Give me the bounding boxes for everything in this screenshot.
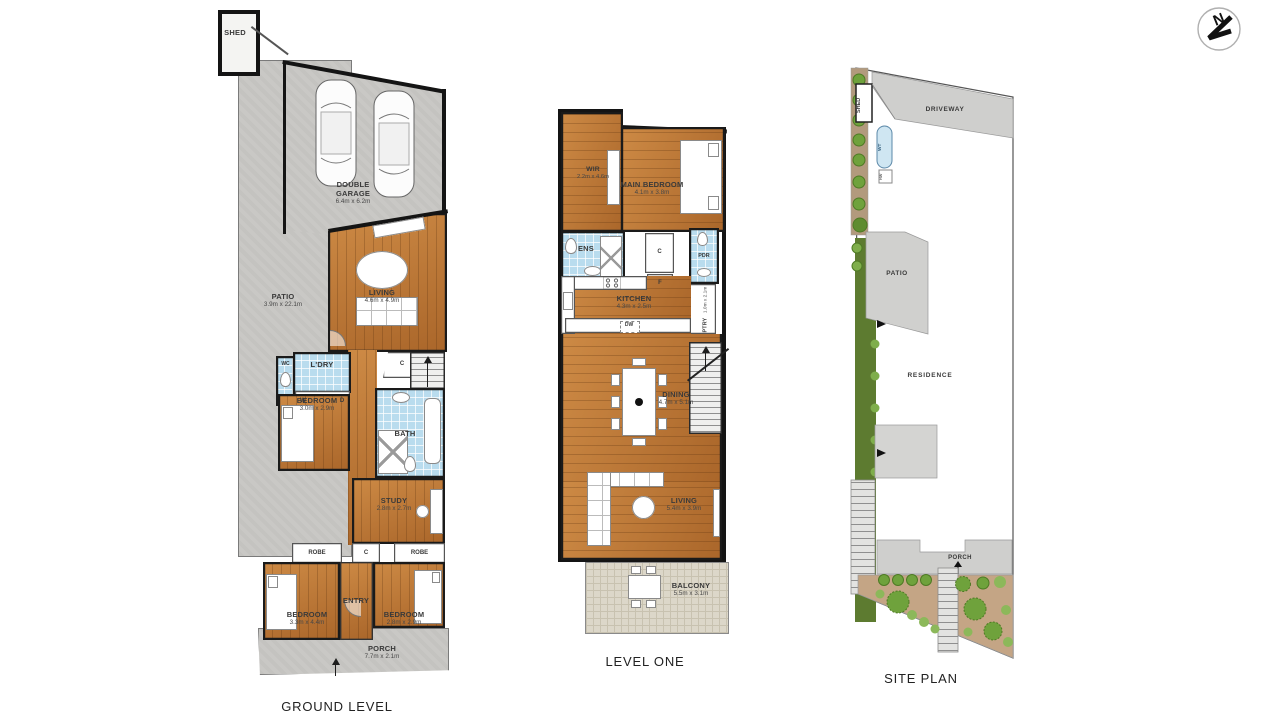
study-label: STUDY 2.8m x 2.7m <box>364 496 424 513</box>
room-dims: 2.8m x 2.7m <box>364 505 424 513</box>
sofa <box>587 472 611 546</box>
room-dims: 4.1m x 3.8m <box>620 189 684 197</box>
fridge-label: F <box>647 280 673 286</box>
chair <box>658 418 667 430</box>
room-dims: 2.8m x 2.9m <box>376 619 432 627</box>
chair <box>611 374 620 386</box>
hall-cupboard-label: C <box>388 361 416 367</box>
site-driveway-label: DRIVEWAY <box>913 107 977 114</box>
pantry-label: PTRY 1.0m x 2.1m <box>692 284 711 336</box>
chair <box>631 600 641 608</box>
cooktop <box>603 277 621 289</box>
site-shed-label: SHED <box>857 88 871 122</box>
room-dims: 1.0m x 2.1m <box>703 287 708 313</box>
chair <box>631 566 641 574</box>
l1-cupboard-label: C <box>645 249 674 255</box>
kitchen-sink <box>563 292 573 310</box>
site-patio-label: PATIO <box>869 271 925 278</box>
room-name: BATH <box>385 429 425 438</box>
level-one-title: LEVEL ONE <box>595 654 695 669</box>
site-garden <box>858 575 1013 658</box>
l1-living-label: LIVING 5.4m x 3.9m <box>653 496 715 513</box>
room-name: DOUBLE GARAGE <box>322 180 384 198</box>
room-name: ENTRY <box>334 596 378 605</box>
chair <box>632 438 646 446</box>
chair <box>646 600 656 608</box>
powder-label: PDR <box>689 254 719 259</box>
basin <box>584 266 601 276</box>
robe-left-label: ROBE <box>292 550 342 556</box>
room-dims: 4.6m x 4.9m <box>350 297 414 305</box>
room-name: ENS <box>570 244 602 253</box>
entry-label: ENTRY <box>334 596 378 605</box>
garage-wall-left <box>283 62 286 234</box>
pillow <box>708 196 719 210</box>
garage-label: DOUBLE GARAGE 6.4m x 6.2m <box>322 180 384 206</box>
ensuite-label: ENS <box>570 244 602 253</box>
bath-label: BATH <box>385 429 425 438</box>
entry-cupboard-label: C <box>352 550 380 556</box>
room-dims: 4.7m x 5.1m <box>644 399 708 407</box>
site-centre-steps <box>938 568 958 652</box>
room-dims: 3.9m x 22.1m <box>252 301 314 309</box>
dishwasher-label: DW <box>620 323 638 328</box>
shed-room <box>218 10 260 76</box>
porch-entry-arrow <box>331 658 340 676</box>
room-dims: 5.5m x 3.1m <box>659 590 723 598</box>
floorplan-canvas: SHED LIVING 4.6m x 4.9m L'DRY WC W D BED… <box>0 0 1280 720</box>
site-water-tank-label: WT <box>879 134 890 160</box>
stairs-up-arrow <box>701 346 710 371</box>
balcony-label: BALCONY 5.5m x 3.1m <box>659 581 723 598</box>
bedroom-mid-label: BEDROOM 3.0m x 2.9m <box>287 396 347 413</box>
toilet <box>697 232 708 246</box>
porch-label: PORCH 7.7m x 2.1m <box>350 644 414 661</box>
room-name: PATIO <box>252 292 314 301</box>
room-name: BEDROOM <box>376 610 432 619</box>
shower <box>600 236 622 280</box>
room-name: KITCHEN <box>602 294 666 303</box>
laundry-label: L'DRY <box>297 360 347 369</box>
main-bedroom-label: MAIN BEDROOM 4.1m x 3.8m <box>620 180 684 197</box>
room-name: BEDROOM <box>287 396 347 405</box>
site-plan-title: SITE PLAN <box>871 671 971 686</box>
toilet <box>280 372 291 387</box>
desk <box>430 489 443 534</box>
toilet <box>404 456 416 472</box>
room-name: PORCH <box>350 644 414 653</box>
wc-label: WC <box>277 362 294 367</box>
room-name: SHED <box>218 28 252 37</box>
site-porch-label: PORCH <box>932 555 988 561</box>
bedroom-left-label: BEDROOM 3.3m x 4.4m <box>278 610 336 627</box>
site-hot-water-label: HW <box>880 171 891 183</box>
basin <box>697 268 711 277</box>
site-residence-label: RESIDENCE <box>894 373 966 380</box>
chair <box>646 566 656 574</box>
pillow <box>268 576 278 588</box>
pillow <box>432 572 440 583</box>
compass-north-icon: N <box>1196 6 1242 52</box>
room-name: STUDY <box>364 496 424 505</box>
stairs-up-arrow <box>423 356 432 387</box>
room-name: LIVING <box>653 496 715 505</box>
site-plan-drawing <box>850 62 1016 662</box>
shed-label: SHED <box>218 28 252 37</box>
kitchen-label: KITCHEN 4.3m x 2.5m <box>602 294 666 311</box>
room-name: MAIN BEDROOM <box>620 180 684 189</box>
basin <box>392 392 410 403</box>
room-dims: 4.3m x 2.5m <box>602 303 666 311</box>
bathtub <box>424 398 441 464</box>
room-name: WIR <box>566 166 620 174</box>
garage-wall-right <box>442 89 446 213</box>
wir-label: WIR 2.2m x 4.6m <box>566 166 620 181</box>
robe-right-label: ROBE <box>394 550 445 556</box>
pillow <box>708 143 719 157</box>
room-name: L'DRY <box>297 360 347 369</box>
coffee-table <box>632 496 655 519</box>
room-name: PTRY <box>702 318 708 333</box>
living-label: LIVING 4.6m x 4.9m <box>350 288 414 305</box>
room-dims: 3.0m x 2.9m <box>287 405 347 413</box>
ground-level-title: GROUND LEVEL <box>277 699 397 714</box>
chair <box>611 418 620 430</box>
rug <box>356 251 408 289</box>
laundry-floor <box>293 352 351 393</box>
room-name: BALCONY <box>659 581 723 590</box>
room-dims: 7.7m x 2.1m <box>350 653 414 661</box>
room-dims: 6.4m x 6.2m <box>322 198 384 206</box>
site-block <box>875 425 937 478</box>
room-dims: 3.3m x 4.4m <box>278 619 336 627</box>
patio-label: PATIO 3.9m x 22.1m <box>252 292 314 309</box>
chair <box>632 358 646 366</box>
chair <box>611 396 620 408</box>
room-name: DINING <box>644 390 708 399</box>
bedroom-right-label: BEDROOM 2.8m x 2.9m <box>376 610 432 627</box>
site-patio <box>866 232 928 334</box>
chair <box>658 374 667 386</box>
room-name: LIVING <box>350 288 414 297</box>
balcony-table <box>628 575 661 599</box>
room-name: BEDROOM <box>278 610 336 619</box>
table-vase <box>635 398 643 406</box>
car-icon <box>313 76 359 190</box>
dining-label: DINING 4.7m x 5.1m <box>644 390 708 407</box>
room-dims: 2.2m x 4.6m <box>566 174 620 181</box>
l1-living-floor <box>561 482 722 560</box>
room-dims: 5.4m x 3.9m <box>653 505 715 513</box>
